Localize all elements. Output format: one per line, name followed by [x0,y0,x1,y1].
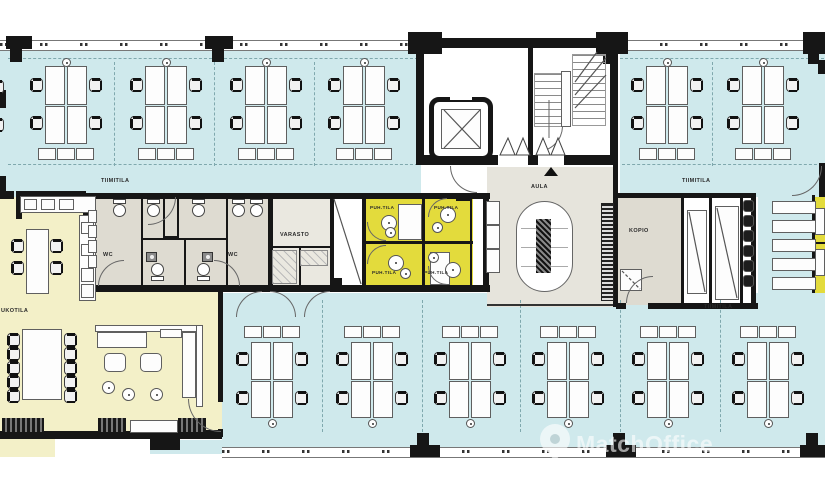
desk [668,106,688,144]
chair [493,352,506,366]
toilet [150,262,166,282]
storage-unit [658,148,676,160]
chair [7,361,20,375]
chair [727,116,740,130]
wall-segment [83,193,490,199]
stacked-chair [743,200,754,212]
kitchen-appliance [59,199,74,210]
storage-unit [740,326,758,338]
wall-segment [681,197,684,303]
desk [273,381,293,418]
toilet [112,199,128,219]
storage-unit [578,326,596,338]
desk [373,342,393,380]
wall-segment [6,36,32,49]
storage-unit [355,148,373,160]
chair [236,391,249,405]
desk [45,66,65,105]
storage-unit [754,148,772,160]
chair [632,391,645,405]
storage-unit [38,148,56,160]
radiator [98,418,126,432]
storage-unit [374,148,392,160]
chair [791,352,804,366]
wall-segment [616,303,626,309]
storage-unit [778,326,796,338]
zone-dash-line [620,58,824,59]
chair [89,116,102,130]
stacked-chair [743,275,754,287]
bench [772,239,816,252]
bench [772,277,816,290]
window-wall-bottom [222,447,825,458]
stacked-chair [743,215,754,227]
desk [251,381,271,418]
wall-segment [456,193,471,201]
desk [742,106,762,144]
room-label-tiimitila-3: TIIMITILA [704,304,732,310]
shelf [88,240,97,253]
chair [230,78,243,92]
chair [691,391,704,405]
chair [295,391,308,405]
room-label-tiimitila-1: TIIMITILA [101,178,129,184]
toilet [191,199,207,219]
shelf [88,225,97,238]
wall-segment [212,49,224,62]
storage-unit [282,326,300,338]
desk [569,381,589,418]
storage-unit [176,148,194,160]
desk [471,381,491,418]
room-label-puh-3: PUH.TILA [372,270,396,275]
side-table [160,329,182,338]
zone-dash-line [314,62,315,166]
desk [747,381,767,418]
storage-unit [639,148,657,160]
storage-unit [336,148,354,160]
desk-lamp [764,419,773,428]
phone-room-desk [815,249,825,276]
kitchen-appliance [81,284,94,298]
desk [365,66,385,105]
window-wall-top-right [620,40,825,51]
room-label-puh-1: PUH.TILA [370,205,394,210]
desk [343,106,363,144]
watermark-text: MatchOffice [576,431,713,458]
desk [449,381,469,418]
wall-segment [800,445,825,457]
wall-segment [648,303,758,309]
high-table [26,229,49,294]
locker [486,225,500,249]
chair [64,361,77,375]
room-label-puh-2: PUH.TILA [434,205,458,210]
desk [471,342,491,380]
chair [289,116,302,130]
zone-dash-line [322,300,323,432]
floor-plan: TIIMITILA TIIMITILA TIIMITILA AULA VARAS… [0,0,825,500]
desk [373,381,393,418]
chair [7,347,20,361]
wall-segment [564,155,618,165]
wall-segment [0,431,222,439]
shelf [88,210,97,223]
equipment-box [300,250,328,266]
kitchen-appliance [41,199,55,210]
desk [145,66,165,105]
chair [230,116,243,130]
chair [395,352,408,366]
desk [251,342,271,380]
chair [11,239,24,253]
wall-segment [150,430,180,450]
elevator-door-gap [450,94,472,100]
sofa-seat [97,332,147,348]
storage-unit [238,148,256,160]
chair [532,391,545,405]
wall-segment [528,155,538,165]
chair [791,391,804,405]
chair [30,116,43,130]
wall-segment [10,49,22,62]
locker [486,249,500,273]
chair [727,78,740,92]
chair [434,391,447,405]
chair [64,347,77,361]
chair [690,78,703,92]
stacked-chair [743,260,754,272]
map-pin-icon [540,424,570,464]
room-label-tiimitila-2: TIIMITILA [682,178,710,184]
wall-segment [184,240,186,286]
chair [0,118,4,132]
room-label-kopio: KOPIO [629,228,649,234]
storage-unit [678,326,696,338]
wall-segment [416,38,424,165]
meeting-table [22,329,62,400]
desk [646,106,666,144]
desk [167,106,187,144]
zone-dash-line [214,62,215,166]
door-swing [450,166,477,193]
watermark: MatchOffice [540,424,713,464]
work-panel [715,206,739,300]
phone-room-chair [432,222,443,233]
chair [434,352,447,366]
desk [67,106,87,144]
stair-stringer [561,71,571,127]
desk [769,342,789,380]
storage-unit [773,148,791,160]
bench [130,420,178,433]
chair [395,391,408,405]
wall-segment [616,193,756,198]
storage-unit [138,148,156,160]
chair [295,352,308,366]
storage-unit [540,326,558,338]
desk [245,106,265,144]
break-area-strip [0,437,55,457]
desk [764,66,784,105]
desk [343,66,363,105]
chair [50,261,63,275]
storage-unit [759,326,777,338]
storage-unit [461,326,479,338]
pouf [150,388,163,401]
room-label-puh-4: PUH.TILA [424,270,448,275]
room-label-wc-1: WC [103,252,113,258]
desk [764,106,784,144]
chair [7,333,20,347]
locker [486,201,500,225]
wall-segment [410,445,440,457]
stair-flight [534,73,562,127]
storage-unit [480,326,498,338]
kitchen-appliance [81,268,94,282]
storage-unit [659,326,677,338]
toilet [231,199,247,219]
phone-room-chair [385,227,396,238]
wall-segment [205,36,233,49]
chair [7,389,20,403]
floor-hatch [272,250,297,284]
work-panel [687,210,707,294]
chair [89,78,102,92]
zone-dash-line [622,164,822,165]
chair [632,352,645,366]
desk [742,66,762,105]
coat-rack [536,219,551,273]
desk [647,381,667,418]
wall-segment [177,197,179,238]
chair [189,78,202,92]
wall-segment [806,433,818,445]
wall-segment [808,54,819,64]
phone-room-chair [428,252,439,263]
radiator [2,418,44,432]
chair [130,78,143,92]
desk [747,342,767,380]
desk [273,342,293,380]
chair [786,78,799,92]
storage-unit [157,148,175,160]
zone-dash-line [8,164,418,165]
wall-segment [365,241,473,244]
chair [493,391,506,405]
wall-segment [141,197,143,285]
wall-segment [408,32,442,54]
desk-lamp [268,419,277,428]
desk [449,342,469,380]
armchair [104,353,126,372]
bench [772,201,816,214]
room-label-break-room: UKOTILA [1,308,28,314]
stacked-chair [743,245,754,257]
chair [7,375,20,389]
toilet [196,262,212,282]
chair [691,352,704,366]
stacked-chair [743,230,754,242]
wall-segment [803,32,825,54]
pouf [122,388,135,401]
chair [64,389,77,403]
desk [365,106,385,144]
chair [532,352,545,366]
chair [336,391,349,405]
desk [647,342,667,380]
chair [130,116,143,130]
desk [167,66,187,105]
wall-segment [163,236,179,238]
armchair [140,353,162,372]
kitchen-appliance [24,199,37,210]
desk [769,381,789,418]
zone-dash-line [620,300,621,432]
desk [668,66,688,105]
storage-unit [263,326,281,338]
chair [0,80,4,94]
sofa-back [196,325,203,407]
room-label-wc-2: WC [228,252,238,258]
wall-segment [818,60,825,74]
room-shaft [332,197,365,288]
storage-unit [735,148,753,160]
wall-segment [218,288,223,402]
chair [64,333,77,347]
desk [245,66,265,105]
chair [387,78,400,92]
chair [236,352,249,366]
phone-room-desk [398,204,422,240]
chair [786,116,799,130]
chair [189,116,202,130]
wall-segment [416,38,618,48]
desk [547,342,567,380]
chair [328,78,341,92]
sofa-back [95,325,203,332]
desk [145,106,165,144]
bench [772,258,816,271]
desk [669,381,689,418]
wall-segment [83,285,490,292]
door-swing [537,126,563,152]
chair [64,375,77,389]
sink [146,252,157,262]
desk [351,342,371,380]
desk [67,66,87,105]
desk [646,66,666,105]
room-label-aula: AULA [531,184,548,190]
chair [690,116,703,130]
chair [336,352,349,366]
chair [732,352,745,366]
wall-segment [709,197,712,303]
storage-unit [276,148,294,160]
desk [669,342,689,380]
zone-dash-line [422,300,423,432]
storage-unit [382,326,400,338]
storage-unit [344,326,362,338]
desk [351,381,371,418]
desk-lamp [368,419,377,428]
wall-segment [333,278,342,286]
chair [631,78,644,92]
chair [631,116,644,130]
storage-unit [244,326,262,338]
phone-room-chair [400,268,411,279]
storage-unit [57,148,75,160]
zone-dash-line [712,62,713,166]
wall-segment [417,433,429,445]
chair [591,391,604,405]
shelving-unit [601,203,614,301]
storage-unit [363,326,381,338]
storage-unit [257,148,275,160]
shelf [88,255,97,268]
desk-lamp [466,419,475,428]
chair [732,391,745,405]
bench [772,220,816,233]
chair [387,116,400,130]
storage-unit [559,326,577,338]
chair [11,261,24,275]
chair [30,78,43,92]
pouf [102,381,115,394]
elevator-cab [441,109,481,149]
storage-unit [442,326,460,338]
storage-unit [640,326,658,338]
chair [50,239,63,253]
desk [547,381,567,418]
storage-unit [76,148,94,160]
wall-segment [470,197,472,285]
toilet [249,199,265,219]
desk [267,66,287,105]
desk [569,342,589,380]
sofa-seat [182,332,196,398]
desk [267,106,287,144]
chair [289,78,302,92]
chair [328,116,341,130]
wall-segment [0,176,6,194]
sink [202,252,213,262]
zone-dash-line [720,300,721,432]
stair-flight [572,54,606,126]
room-label-varasto: VARASTO [280,232,309,238]
zone-dash-line [520,300,521,432]
chair [591,352,604,366]
aula-edge [487,304,613,306]
phone-room-desk [815,208,825,235]
storage-unit [677,148,695,160]
zone-dash-line [114,62,115,166]
desk [45,106,65,144]
wall-segment [596,32,628,54]
wall-segment [528,46,533,158]
